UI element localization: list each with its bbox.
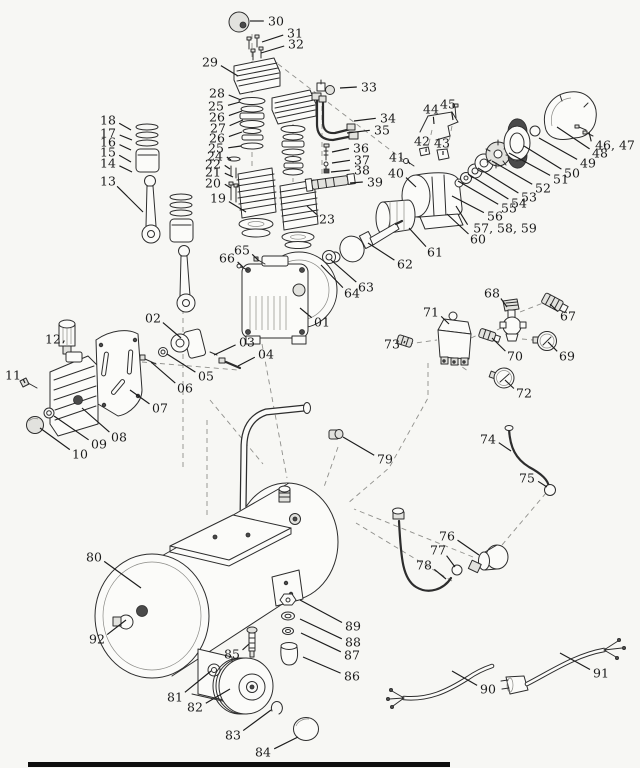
part-number-label: 49 (580, 156, 596, 171)
wire-harness-90 (386, 666, 492, 709)
callout-70: 70 (492, 338, 523, 364)
part-number-label: 69 (559, 349, 575, 364)
part-number-label: 02 (145, 311, 161, 326)
callout-leader-line (343, 437, 374, 455)
callout-leader-line (119, 166, 132, 172)
callout-leader-line (538, 481, 547, 487)
part-number-label: 73 (384, 337, 400, 352)
callout-18: 18 (100, 113, 131, 131)
crankcase-01 (242, 252, 337, 344)
callout-leader-line (478, 168, 518, 193)
part-number-label: 41 (389, 150, 405, 165)
part-number-label: 17 (100, 126, 116, 141)
part-number-label: 52 (535, 181, 551, 196)
callout-leader-line (331, 170, 350, 172)
callout-leader-line (119, 123, 131, 130)
callout-61: 61 (409, 228, 443, 260)
part-number-label: 25 (208, 141, 224, 156)
callout-leader-line (340, 87, 357, 88)
part-number-label: 80 (86, 550, 102, 565)
axle-bolt-85 (247, 627, 257, 657)
callout-leader-line (303, 657, 341, 673)
callout-29: 29 (202, 55, 238, 77)
part-number-label: 12 (45, 332, 61, 347)
part-number-label: 67 (560, 309, 576, 324)
part-number-label: 30 (268, 14, 284, 29)
callout-77: 77 (430, 543, 455, 568)
part-number-label: 35 (374, 123, 390, 138)
air-filter-12 (59, 320, 75, 354)
callout-leader-line (225, 173, 233, 177)
callout-leader-line (119, 155, 131, 162)
callout-leader-line (499, 443, 511, 451)
part-number-label: 79 (377, 452, 393, 467)
cylinder-19 (237, 168, 276, 237)
callout-leader-line (120, 145, 132, 150)
part-number-label: 89 (345, 619, 361, 634)
retaining-clip-83 (271, 702, 282, 714)
part-number-label: 29 (202, 55, 218, 70)
part-number-label: 62 (397, 257, 413, 272)
part-number-label: 68 (484, 286, 500, 301)
callout-leader-line (409, 228, 426, 247)
valve-plate-stack-1 (239, 98, 265, 150)
part-number-label: 45 (440, 97, 456, 112)
callout-leader-line (368, 243, 394, 260)
part-number-label: 85 (224, 647, 240, 662)
callout-leader-line (229, 95, 241, 100)
part-number-label: 86 (344, 669, 360, 684)
callout-leader-line (332, 149, 349, 153)
callout-28: 28 (209, 86, 241, 101)
elbow-fitting-33 (317, 80, 335, 95)
callout-75: 75 (519, 471, 547, 488)
callout-83: 83 (225, 710, 271, 743)
callout-leader-line (354, 118, 376, 121)
part-number-label: 06 (177, 381, 193, 396)
callout-62: 62 (368, 243, 413, 272)
part-number-label: 72 (516, 386, 532, 401)
callout-50: 50 (524, 146, 580, 181)
outlet-block-02 (171, 328, 206, 358)
part-number-label: 05 (198, 369, 214, 384)
part-number-label: 78 (416, 558, 432, 573)
part-number-label: 51 (553, 172, 569, 187)
part-number-label: 33 (361, 80, 377, 95)
part-number-label: 18 (100, 113, 116, 128)
head-bolts-31-32 (247, 35, 263, 60)
fan-cover-46-47 (530, 92, 596, 140)
callout-leader-line (262, 35, 283, 42)
callout-30: 30 (250, 14, 284, 29)
part-number-label: 19 (210, 191, 226, 206)
callout-74: 74 (480, 432, 511, 452)
callout-32: 32 (261, 37, 304, 54)
part-number-label: 39 (367, 175, 383, 190)
callout-79: 79 (343, 437, 393, 467)
part-number-label: 40 (388, 166, 404, 181)
part-number-label: 70 (507, 349, 523, 364)
callout-02: 02 (145, 311, 181, 339)
scan-border-bar (28, 762, 450, 767)
part-number-label: 82 (187, 700, 203, 715)
callout-78: 78 (416, 558, 446, 580)
callout-leader-line (261, 46, 284, 53)
callout-89: 89 (300, 600, 361, 634)
part-number-label: 71 (423, 305, 439, 320)
valve-plate-stack-2 (281, 126, 305, 176)
callout-leader-line (458, 540, 480, 555)
exploded-diagram: 0102030405060708091011121314151617181920… (0, 0, 640, 768)
cover-plate-07 (96, 331, 142, 416)
part-number-label: 83 (225, 728, 241, 743)
fittings-36-38 (324, 144, 329, 173)
part-number-label: 84 (255, 745, 271, 760)
part-number-label: 11 (5, 368, 21, 383)
part-number-label: 65 (234, 243, 250, 258)
part-number-label: 09 (91, 437, 107, 452)
part-number-label: 28 (209, 86, 225, 101)
callout-13: 13 (100, 174, 143, 213)
part-number-label: 92 (89, 632, 105, 647)
part-number-label: 76 (439, 529, 455, 544)
part-number-label: 87 (344, 648, 360, 663)
callout-33: 33 (340, 80, 377, 95)
callout-leader-line (229, 132, 242, 137)
callout-leader-line (589, 132, 591, 141)
callout-84: 84 (255, 737, 298, 760)
part-number-label: 03 (239, 335, 255, 350)
part-number-label: 10 (72, 447, 88, 462)
callout-leader-line (274, 737, 298, 749)
callout-leader-line (117, 186, 143, 212)
callout-leader-line (447, 556, 455, 567)
callout-45: 45 (440, 97, 456, 121)
part-number-label: 55 (501, 201, 517, 216)
callout-leader-line (225, 165, 230, 169)
callout-leader-line (433, 117, 434, 124)
piston-assembly-2 (170, 194, 195, 312)
part-number-label: 23 (319, 212, 335, 227)
part-number-label: 60 (470, 232, 486, 247)
regulator-68 (500, 299, 526, 341)
part-number-label: 08 (111, 430, 127, 445)
callout-leader-line (243, 644, 250, 650)
callout-leader-line (468, 174, 508, 199)
part-number-label: 75 (519, 471, 535, 486)
callout-leader-line (332, 160, 350, 163)
cylinder-head-2-29 (272, 90, 316, 124)
callout-leader-line (524, 146, 561, 169)
nipple-70 (478, 328, 501, 343)
plug-79 (329, 430, 343, 440)
part-number-label: 04 (258, 347, 274, 362)
part-number-label: 44 (423, 102, 439, 117)
part-number-label: 74 (480, 432, 496, 447)
callout-leader-line (228, 102, 240, 105)
part-number-label: 90 (480, 682, 496, 697)
part-number-label: 77 (430, 543, 446, 558)
callout-leader-line (539, 138, 577, 159)
manifold-39 (305, 173, 355, 192)
callout-03: 03 (214, 335, 255, 356)
callout-leader-line (228, 146, 241, 148)
callout-72: 72 (505, 380, 532, 401)
part-number-label: 01 (314, 315, 330, 330)
exploded-parts-diagram-page: 0102030405060708091011121314151617181920… (0, 0, 640, 768)
part-number-label: 61 (427, 245, 443, 260)
check-valve-76-77 (452, 545, 508, 575)
callout-leader-line (458, 181, 498, 204)
piston-assembly-1 (136, 124, 160, 243)
part-number-label: 91 (593, 666, 609, 681)
part-number-label: 64 (344, 286, 360, 301)
head-cover-08 (50, 352, 98, 436)
callout-leader-line (151, 362, 175, 383)
part-number-label: 88 (345, 635, 361, 650)
assembly-dashed-lines (142, 34, 546, 581)
part-number-label: 81 (167, 690, 183, 705)
callout-leader-line (120, 135, 132, 140)
part-number-label: 43 (434, 136, 450, 151)
callout-leader-line (214, 345, 236, 355)
callout-leader-line (434, 569, 446, 579)
cylinder-head-1-29 (234, 58, 280, 94)
part-number-label: 32 (288, 37, 304, 52)
part-number-label: 63 (358, 280, 374, 295)
callout-leader-line (238, 357, 255, 366)
part-number-label: 42 (414, 134, 430, 149)
pressure-switch-71 (438, 312, 471, 365)
part-number-label: 13 (100, 174, 116, 189)
muffler-cap-30 (229, 12, 249, 32)
callout-leader-line (300, 600, 342, 623)
callout-leader-line (163, 323, 181, 338)
part-number-label: 07 (152, 401, 168, 416)
part-number-label: 66 (219, 251, 235, 266)
